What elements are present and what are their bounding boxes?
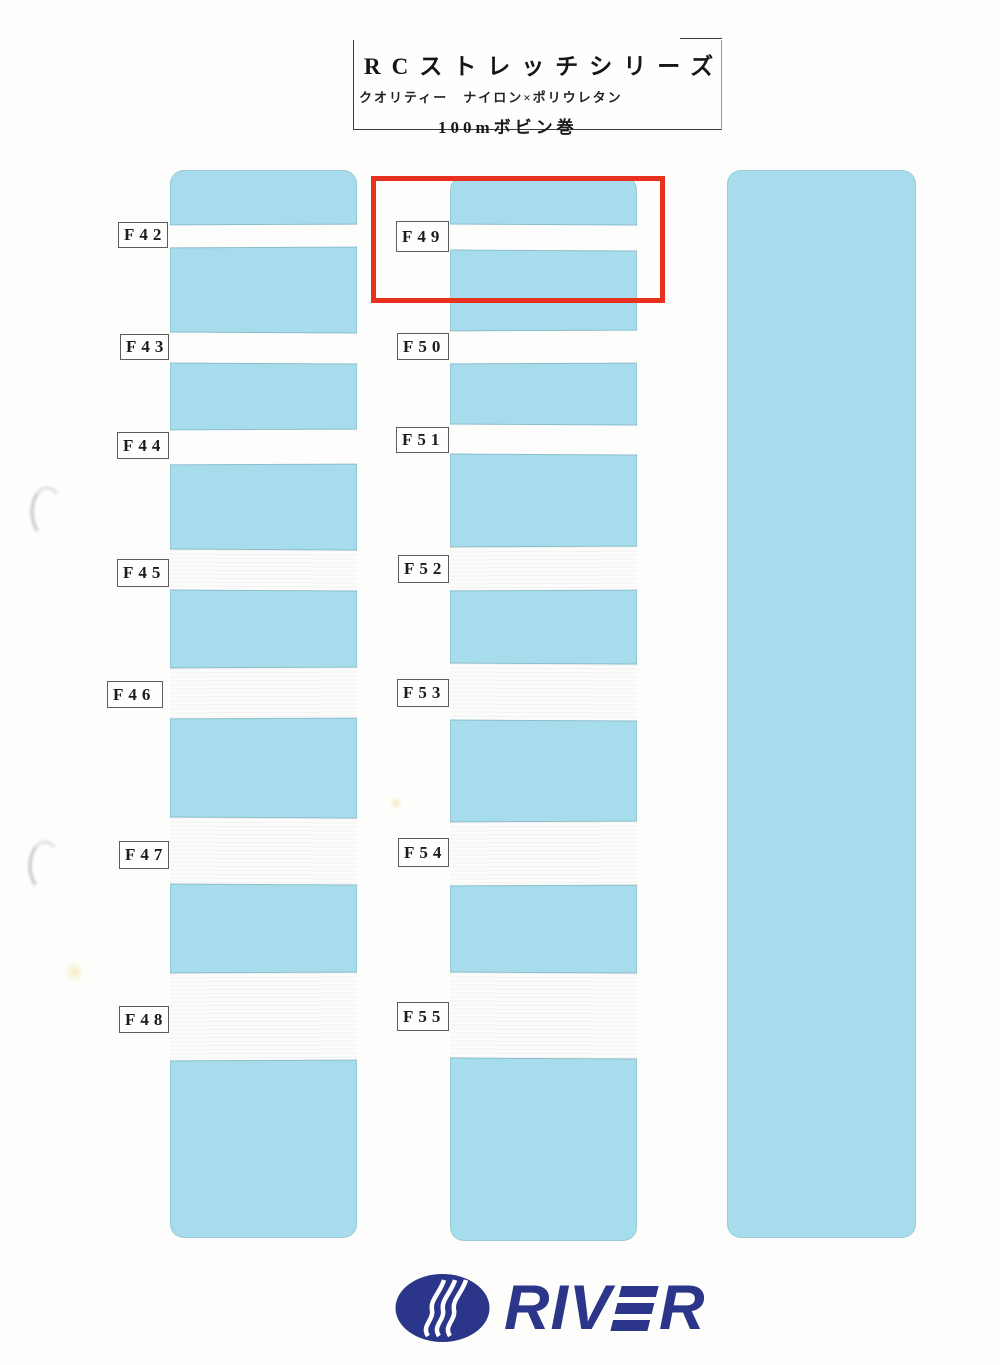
hole-punch-icon <box>28 840 62 892</box>
tape-swatch-f42 <box>170 225 357 248</box>
label-f51: F51 <box>396 427 449 453</box>
tape-swatch-f47 <box>170 818 357 885</box>
label-f53: F53 <box>397 679 449 707</box>
tape-swatch-f43 <box>170 333 357 364</box>
label-f42: F42 <box>118 222 168 248</box>
label-f43: F43 <box>120 334 169 360</box>
tape-swatch-f55 <box>450 973 637 1059</box>
bobbin-info: 100mボビン巻 <box>438 113 721 138</box>
tape-swatch-f54 <box>450 822 637 886</box>
label-f48: F48 <box>119 1006 169 1033</box>
catalog-page: RCストレッチシリーズ クオリティー ナイロン×ポリウレタン 100mボビン巻 … <box>0 0 1000 1365</box>
sample-strip-right-blank <box>727 170 916 1238</box>
river-logo: RIV R <box>394 1272 706 1344</box>
series-title: RCストレッチシリーズ <box>364 47 721 81</box>
paper-stain <box>390 796 402 810</box>
label-f44: F44 <box>117 432 169 459</box>
tape-swatch-f44 <box>170 430 357 465</box>
river-logo-ellipse-icon <box>394 1272 491 1344</box>
title-box-top-tick <box>680 38 722 39</box>
label-f55: F55 <box>397 1002 449 1031</box>
tape-swatch-f49 <box>450 225 637 251</box>
tape-swatch-f46 <box>170 668 357 719</box>
sample-strip-middle <box>450 176 637 1241</box>
label-f46: F46 <box>107 681 163 708</box>
label-f50: F50 <box>397 333 449 360</box>
label-f49: F49 <box>396 221 449 252</box>
label-f45: F45 <box>117 559 169 587</box>
quality-subtitle: クオリティー ナイロン×ポリウレタン <box>359 87 721 106</box>
hole-punch-icon <box>30 486 64 538</box>
stylized-e-glyph <box>610 1286 658 1331</box>
paper-stain <box>64 962 84 982</box>
logo-text-r: R <box>659 1277 706 1340</box>
tape-swatch-f45 <box>170 550 357 591</box>
tape-swatch-f53 <box>450 664 637 721</box>
label-f52: F52 <box>398 555 449 583</box>
label-f47: F47 <box>119 841 169 869</box>
label-f54: F54 <box>398 838 449 867</box>
tape-swatch-f52 <box>450 547 637 591</box>
logo-text-riv: RIV <box>504 1277 612 1340</box>
title-box: RCストレッチシリーズ クオリティー ナイロン×ポリウレタン 100mボビン巻 <box>353 40 722 130</box>
sample-strip-left <box>170 170 357 1238</box>
tape-swatch-f48 <box>170 973 357 1061</box>
tape-swatch-f51 <box>450 425 637 455</box>
river-logo-text: RIV R <box>504 1277 706 1340</box>
tape-swatch-f50 <box>450 331 637 364</box>
